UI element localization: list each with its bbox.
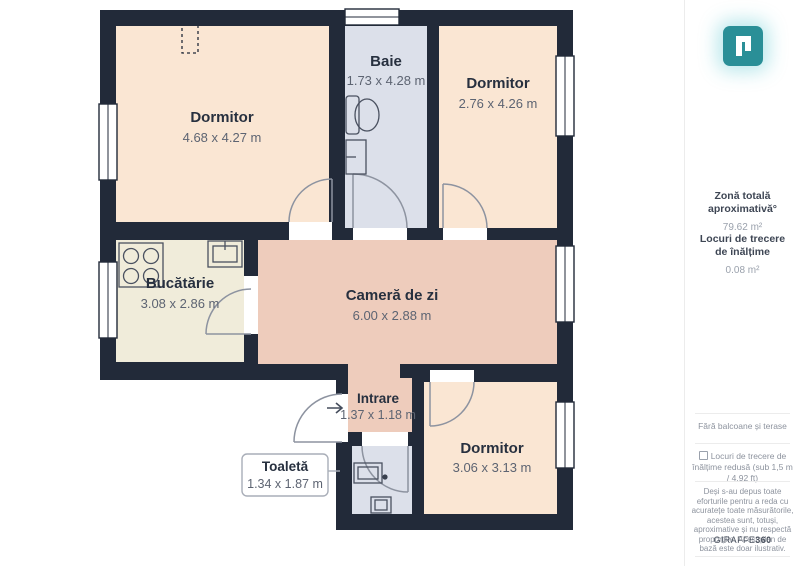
dims-toilet: 1.34 x 1.87 m: [247, 477, 323, 491]
window-top-bathroom: [345, 9, 399, 25]
divider: [695, 443, 790, 444]
dims-living-room: 6.00 x 2.88 m: [353, 308, 432, 323]
window-right-living: [556, 246, 574, 322]
clearance-section: Locuri de trecere de înălțime 0.08 m²: [685, 233, 800, 276]
floor-plan-page: Dormitor 4.68 x 4.27 m Baie 1.73 x 4.28 …: [0, 0, 800, 566]
toilet-callout: Toaletă 1.34 x 1.87 m: [242, 454, 340, 496]
window-left-kitchen: [99, 262, 117, 338]
door-front-entrance: [294, 394, 342, 442]
label-bedroom-top-right: Dormitor: [466, 75, 529, 92]
label-bedroom-top-left: Dormitor: [190, 109, 253, 126]
window-left-bedroom: [99, 104, 117, 180]
room-bedroom-top-right: [439, 26, 557, 228]
info-sidebar: Zonă totală aproximativă° 79.62 m² Locur…: [684, 0, 800, 566]
label-living-room: Cameră de zi: [346, 287, 439, 304]
brand-name: GIRAFFE: [713, 535, 755, 545]
low-clearance-checkbox[interactable]: [699, 451, 708, 460]
dims-bedroom-top-right: 2.76 x 4.26 m: [459, 96, 538, 111]
brand-logo-glyph: [723, 26, 763, 66]
label-bathroom: Baie: [370, 53, 402, 70]
total-area-section: Zonă totală aproximativă° 79.62 m²: [685, 190, 800, 233]
label-toilet: Toaletă: [262, 459, 309, 474]
window-right-bedroom-top: [556, 56, 574, 136]
window-right-bedroom-bottom: [556, 402, 574, 468]
clearance-label: Locuri de trecere de înălțime: [685, 233, 800, 259]
dims-bedroom-bottom-right: 3.06 x 3.13 m: [453, 460, 532, 475]
brand-logo-icon: [723, 26, 763, 66]
clearance-value: 0.08 m²: [685, 265, 800, 276]
floor-plan-drawing: Dormitor 4.68 x 4.27 m Baie 1.73 x 4.28 …: [0, 0, 684, 566]
total-area-label: Zonă totală aproximativă°: [685, 190, 800, 216]
divider: [695, 556, 790, 557]
label-bedroom-bottom-right: Dormitor: [460, 440, 523, 457]
label-kitchen: Bucătărie: [146, 275, 214, 292]
divider: [695, 481, 790, 482]
dims-bathroom: 1.73 x 4.28 m: [347, 73, 426, 88]
total-area-value: 79.62 m²: [685, 222, 800, 233]
dims-entrance: 1.37 x 1.18 m: [340, 408, 416, 422]
label-entrance: Intrare: [357, 391, 400, 406]
brand-suffix: 360: [755, 535, 771, 545]
low-clearance-legend: Locuri de trecere de înălțime redusă (su…: [691, 451, 794, 484]
giraffe360-brand: GIRAFFE360: [685, 535, 800, 545]
divider: [695, 413, 790, 414]
dims-bedroom-top-left: 4.68 x 4.27 m: [183, 130, 262, 145]
no-balconies-note: Fără balcoane și terase: [685, 421, 800, 431]
dims-kitchen: 3.08 x 2.86 m: [141, 296, 220, 311]
